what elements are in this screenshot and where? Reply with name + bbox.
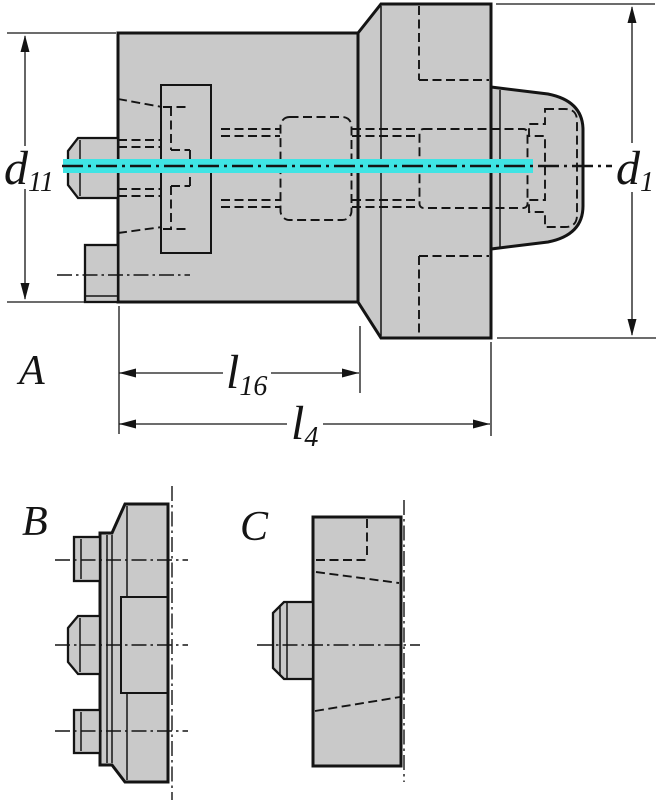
dimension-l4: l4 <box>119 342 491 453</box>
technical-drawing-canvas: d11 d1 l16 l4 A <box>0 0 657 800</box>
dim-label-l16: l16 <box>226 346 267 402</box>
view-a-main-view: d11 d1 l16 l4 A <box>4 4 656 453</box>
view-c-screw-outline <box>273 602 313 679</box>
bottom-lug-outline <box>85 245 118 302</box>
dimension-l16: l16 <box>119 306 360 434</box>
view-b-top-lug <box>74 537 100 581</box>
dim-label-d1: d1 <box>616 142 654 198</box>
dim-label-l4: l4 <box>291 397 318 453</box>
view-a-label: A <box>16 348 45 394</box>
view-c-profile-view: C <box>240 500 420 782</box>
view-c-label: C <box>240 504 269 550</box>
dim-label-d11: d11 <box>4 142 54 198</box>
view-b-plate-outline <box>100 504 168 782</box>
view-b-label: B <box>22 499 48 545</box>
view-c-body-outline <box>313 517 401 766</box>
view-b-profile-view: B <box>22 486 188 800</box>
